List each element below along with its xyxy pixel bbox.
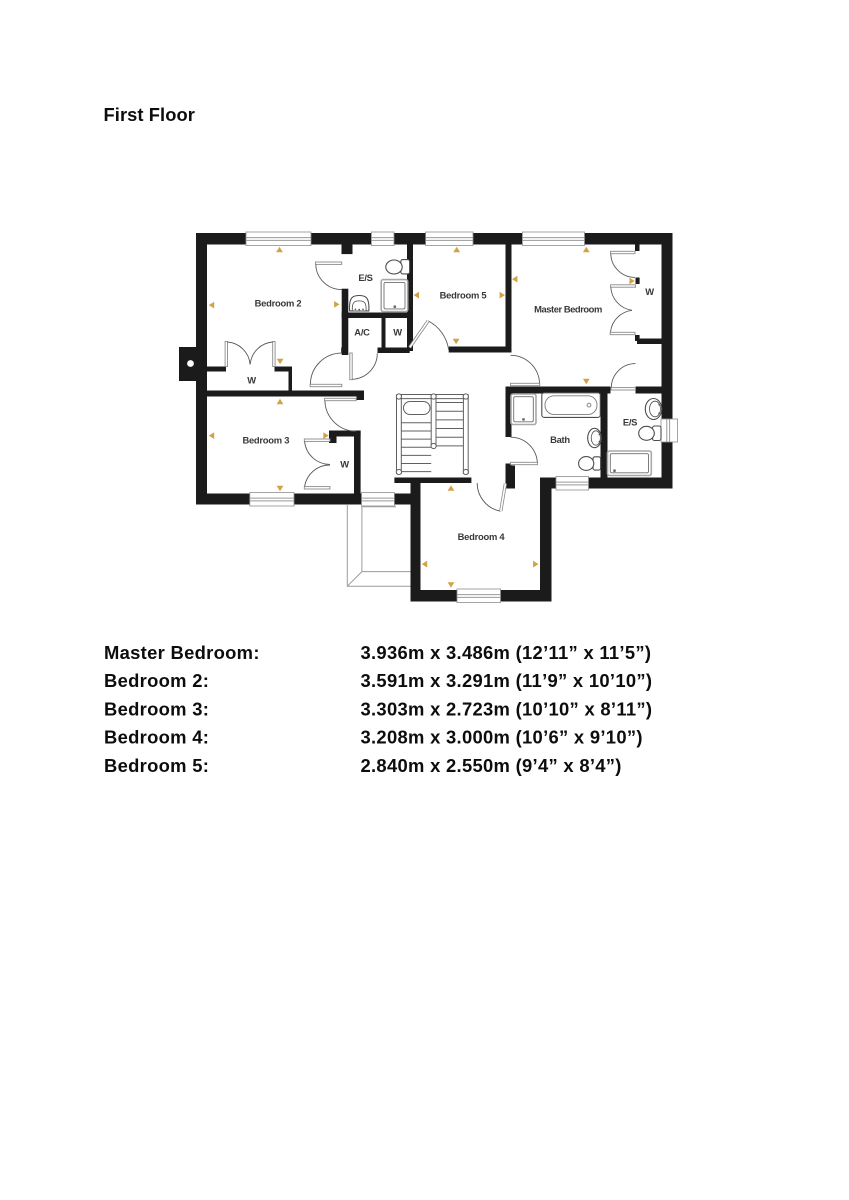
svg-text:W: W	[393, 327, 402, 338]
svg-text:Bedroom 3: Bedroom 3	[242, 435, 289, 446]
svg-text:2.840m x 2.550m (9’4” x 8’4”): 2.840m x 2.550m (9’4” x 8’4”)	[361, 755, 622, 776]
svg-text:3.208m x 3.000m (10’6” x 9’10”: 3.208m x 3.000m (10’6” x 9’10”)	[361, 727, 643, 748]
svg-text:W: W	[340, 459, 349, 470]
svg-text:Master Bedroom:: Master Bedroom:	[104, 642, 260, 663]
svg-text:E/S: E/S	[623, 417, 637, 428]
svg-text:Bedroom 2: Bedroom 2	[255, 298, 302, 309]
svg-text:Bedroom 4:: Bedroom 4:	[104, 727, 209, 748]
svg-text:W: W	[645, 286, 654, 297]
svg-text:A/C: A/C	[354, 327, 370, 338]
svg-text:Bedroom 4: Bedroom 4	[458, 531, 506, 542]
svg-text:3.936m x 3.486m (12’11” x 11’5: 3.936m x 3.486m (12’11” x 11’5”)	[361, 642, 652, 663]
svg-text:3.591m x 3.291m (11’9” x 10’10: 3.591m x 3.291m (11’9” x 10’10”)	[361, 670, 653, 691]
svg-text:3.303m x 2.723m (10’10” x 8’11: 3.303m x 2.723m (10’10” x 8’11”)	[361, 698, 653, 719]
svg-text:W: W	[247, 374, 256, 385]
svg-text:Bedroom 3:: Bedroom 3:	[104, 698, 209, 719]
svg-text:First Floor: First Floor	[104, 104, 196, 125]
svg-text:E/S: E/S	[358, 272, 372, 283]
svg-text:Bath: Bath	[550, 434, 570, 445]
svg-text:Bedroom 2:: Bedroom 2:	[104, 670, 209, 691]
svg-text:Master Bedroom: Master Bedroom	[534, 304, 602, 315]
svg-text:Bedroom 5:: Bedroom 5:	[104, 755, 209, 776]
svg-text:Bedroom 5: Bedroom 5	[440, 290, 487, 301]
